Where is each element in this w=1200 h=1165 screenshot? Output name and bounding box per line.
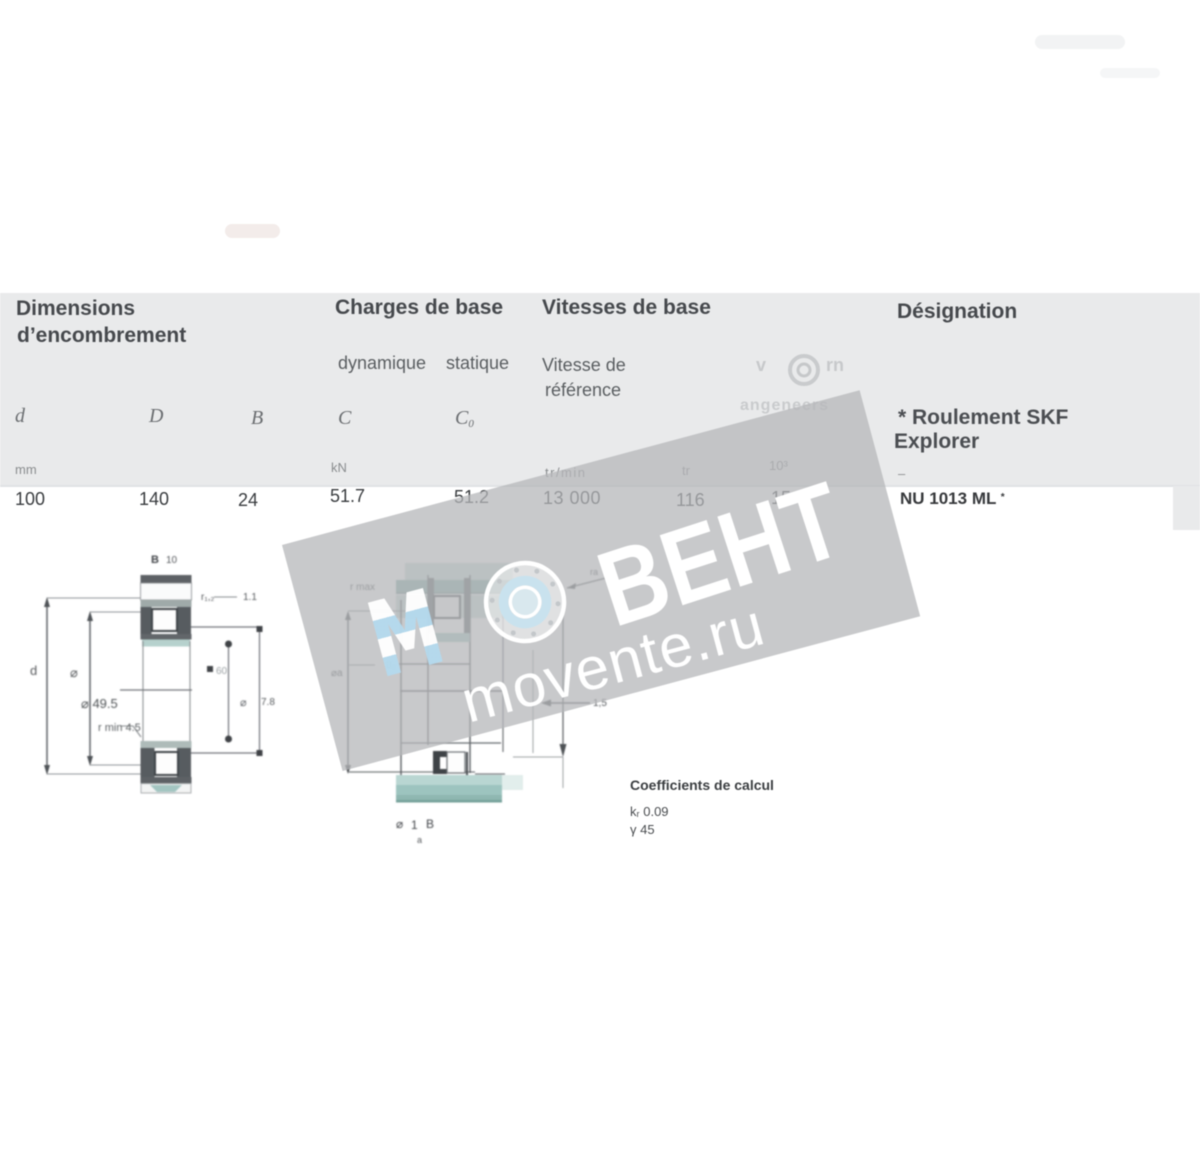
svg-text:1: 1 xyxy=(411,818,418,832)
svg-text:10: 10 xyxy=(166,555,178,566)
svg-text:⌀: ⌀ xyxy=(240,697,247,709)
svg-text:d: d xyxy=(30,663,37,678)
svg-text:60: 60 xyxy=(216,666,228,677)
svg-text:B: B xyxy=(426,817,434,831)
svg-text:⌀: ⌀ xyxy=(70,665,78,680)
svg-text:a: a xyxy=(417,835,422,845)
svg-text:r min 4.5: r min 4.5 xyxy=(98,722,141,734)
svg-text:1.1: 1.1 xyxy=(243,592,257,603)
svg-text:⌀ 49.5: ⌀ 49.5 xyxy=(81,696,118,711)
svg-text:7.8: 7.8 xyxy=(261,697,275,708)
svg-text:⌀: ⌀ xyxy=(396,817,403,831)
svg-text:B: B xyxy=(151,554,159,566)
svg-text:r₁,₂: r₁,₂ xyxy=(201,592,214,603)
